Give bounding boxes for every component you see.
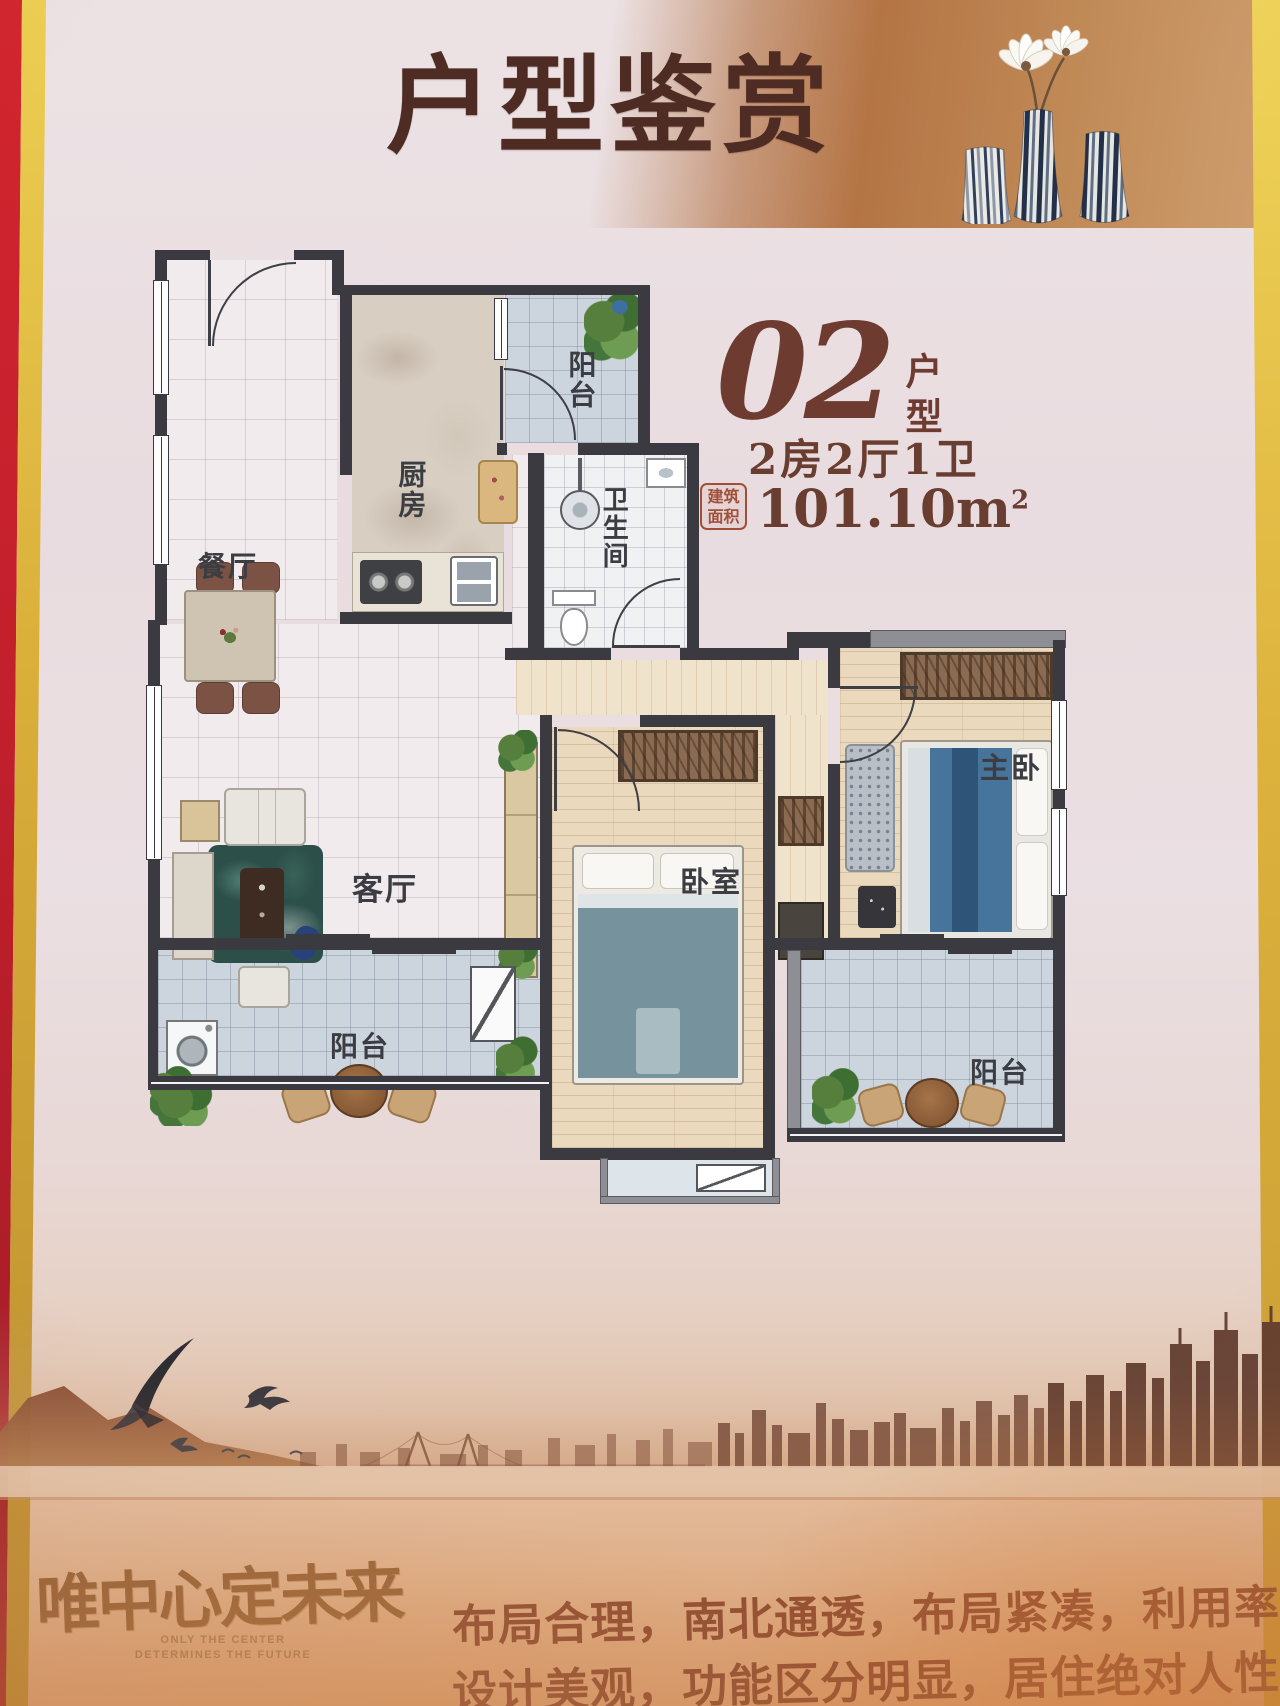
balcony-plants bbox=[812, 1068, 860, 1126]
dining-chair bbox=[242, 682, 280, 714]
wall bbox=[148, 938, 552, 950]
shower-arm bbox=[578, 458, 582, 492]
door-leaf bbox=[554, 727, 557, 811]
sliding-door-panel bbox=[948, 949, 1012, 954]
master-bed-runner bbox=[952, 748, 978, 932]
room-label-balcony-sw: 阳台 bbox=[330, 1032, 390, 1061]
poster-photo: 户型鉴赏 bbox=[0, 0, 1280, 1706]
bed-runner bbox=[636, 1008, 680, 1074]
ac-unit-symbol bbox=[470, 966, 516, 1042]
master-wardrobe bbox=[900, 652, 1053, 700]
stove bbox=[360, 560, 422, 604]
wall bbox=[505, 648, 611, 660]
room-label-living: 客厅 bbox=[352, 874, 418, 907]
vase-decoration bbox=[938, 24, 1138, 224]
master-pillow bbox=[1016, 842, 1048, 930]
table-centerpiece bbox=[212, 620, 248, 652]
corridor-cabinet-dark bbox=[778, 902, 824, 960]
side-table bbox=[180, 800, 220, 842]
sliding-door-panel bbox=[286, 934, 370, 939]
wall bbox=[148, 950, 158, 1078]
room-label-kitchen: 厨房 bbox=[396, 460, 425, 520]
sliding-door-panel bbox=[880, 934, 944, 939]
decor-stone bbox=[612, 300, 628, 314]
niche-wall bbox=[600, 1196, 780, 1204]
master-side-table bbox=[858, 886, 896, 928]
shower-head bbox=[560, 490, 600, 530]
shear-wall bbox=[870, 630, 1066, 648]
wall bbox=[340, 612, 512, 624]
wall bbox=[680, 648, 799, 660]
wall bbox=[687, 443, 699, 660]
room-label-dining: 餐厅 bbox=[198, 552, 258, 581]
wall bbox=[638, 285, 650, 453]
wall bbox=[497, 443, 507, 455]
balcony-railing bbox=[148, 1076, 552, 1090]
wall bbox=[160, 250, 210, 260]
unit-area-value: 101.10m bbox=[757, 479, 1011, 540]
cabinet-plant bbox=[498, 730, 540, 772]
window bbox=[1051, 700, 1067, 790]
window bbox=[146, 685, 162, 860]
room-label-bathroom: 卫生间 bbox=[600, 486, 627, 570]
wall bbox=[763, 715, 775, 1148]
sofa bbox=[224, 788, 306, 846]
seal-line-top: 建筑 bbox=[702, 488, 745, 508]
calligraphy-english-line2: DETERMINES THE FUTURE bbox=[98, 1648, 348, 1663]
wardrobe bbox=[618, 730, 758, 782]
room-label-bedroom: 卧室 bbox=[680, 868, 742, 898]
wall bbox=[775, 938, 1065, 950]
wall bbox=[340, 293, 352, 475]
unit-layout: 2房2厅1卫 bbox=[748, 426, 980, 487]
ac-unit-symbol bbox=[696, 1164, 766, 1192]
ink-birds-art bbox=[52, 1326, 382, 1476]
door-leaf bbox=[208, 260, 211, 346]
master-lounge-sofa bbox=[845, 744, 895, 872]
wall bbox=[787, 632, 875, 648]
pillow bbox=[582, 853, 654, 889]
dining-chair bbox=[196, 682, 234, 714]
floor-area-seal: 建筑 面积 bbox=[700, 483, 747, 530]
wall bbox=[828, 764, 840, 950]
unit-area-superscript: 2 bbox=[1011, 486, 1029, 516]
coffee-table bbox=[240, 868, 284, 946]
wall bbox=[828, 648, 840, 688]
calligraphy-slogan: 唯中心定未来 bbox=[23, 1541, 416, 1647]
window bbox=[1051, 808, 1067, 896]
wall bbox=[1053, 640, 1065, 950]
bathroom-sink bbox=[646, 458, 686, 488]
armchair bbox=[238, 966, 290, 1008]
balcony-table bbox=[330, 1064, 388, 1118]
wall bbox=[332, 285, 648, 295]
seal-line-bottom: 面积 bbox=[702, 508, 745, 528]
wall bbox=[640, 715, 775, 727]
wall bbox=[1053, 950, 1065, 1128]
wall bbox=[528, 453, 544, 648]
balcony-table bbox=[905, 1078, 959, 1128]
room-label-balcony-se: 阳台 bbox=[970, 1058, 1030, 1087]
window bbox=[153, 435, 169, 565]
wall bbox=[578, 443, 698, 455]
room-label-balcony-north: 阳台 bbox=[566, 350, 595, 410]
calligraphy-english-line1: ONLY THE CENTER bbox=[98, 1633, 348, 1648]
corridor-floor bbox=[516, 660, 828, 715]
kitchen-sink bbox=[450, 556, 498, 606]
unit-area: 101.10m2 bbox=[757, 479, 1029, 540]
room-label-master-bedroom: 主卧 bbox=[980, 754, 1042, 784]
shear-wall bbox=[787, 950, 801, 1140]
sliding-door-panel bbox=[372, 949, 456, 954]
page-title: 户型鉴赏 bbox=[320, 20, 900, 174]
toilet-tank bbox=[552, 590, 596, 606]
door-leaf bbox=[500, 366, 503, 440]
toilet-bowl bbox=[560, 608, 588, 646]
window bbox=[153, 280, 169, 395]
cutting-board bbox=[478, 460, 518, 524]
calligraphy-english: ONLY THE CENTER DETERMINES THE FUTURE bbox=[98, 1633, 348, 1663]
balcony-railing bbox=[787, 1128, 1065, 1142]
wall bbox=[540, 1148, 775, 1160]
corridor-cabinet bbox=[778, 796, 824, 846]
window bbox=[494, 298, 508, 360]
